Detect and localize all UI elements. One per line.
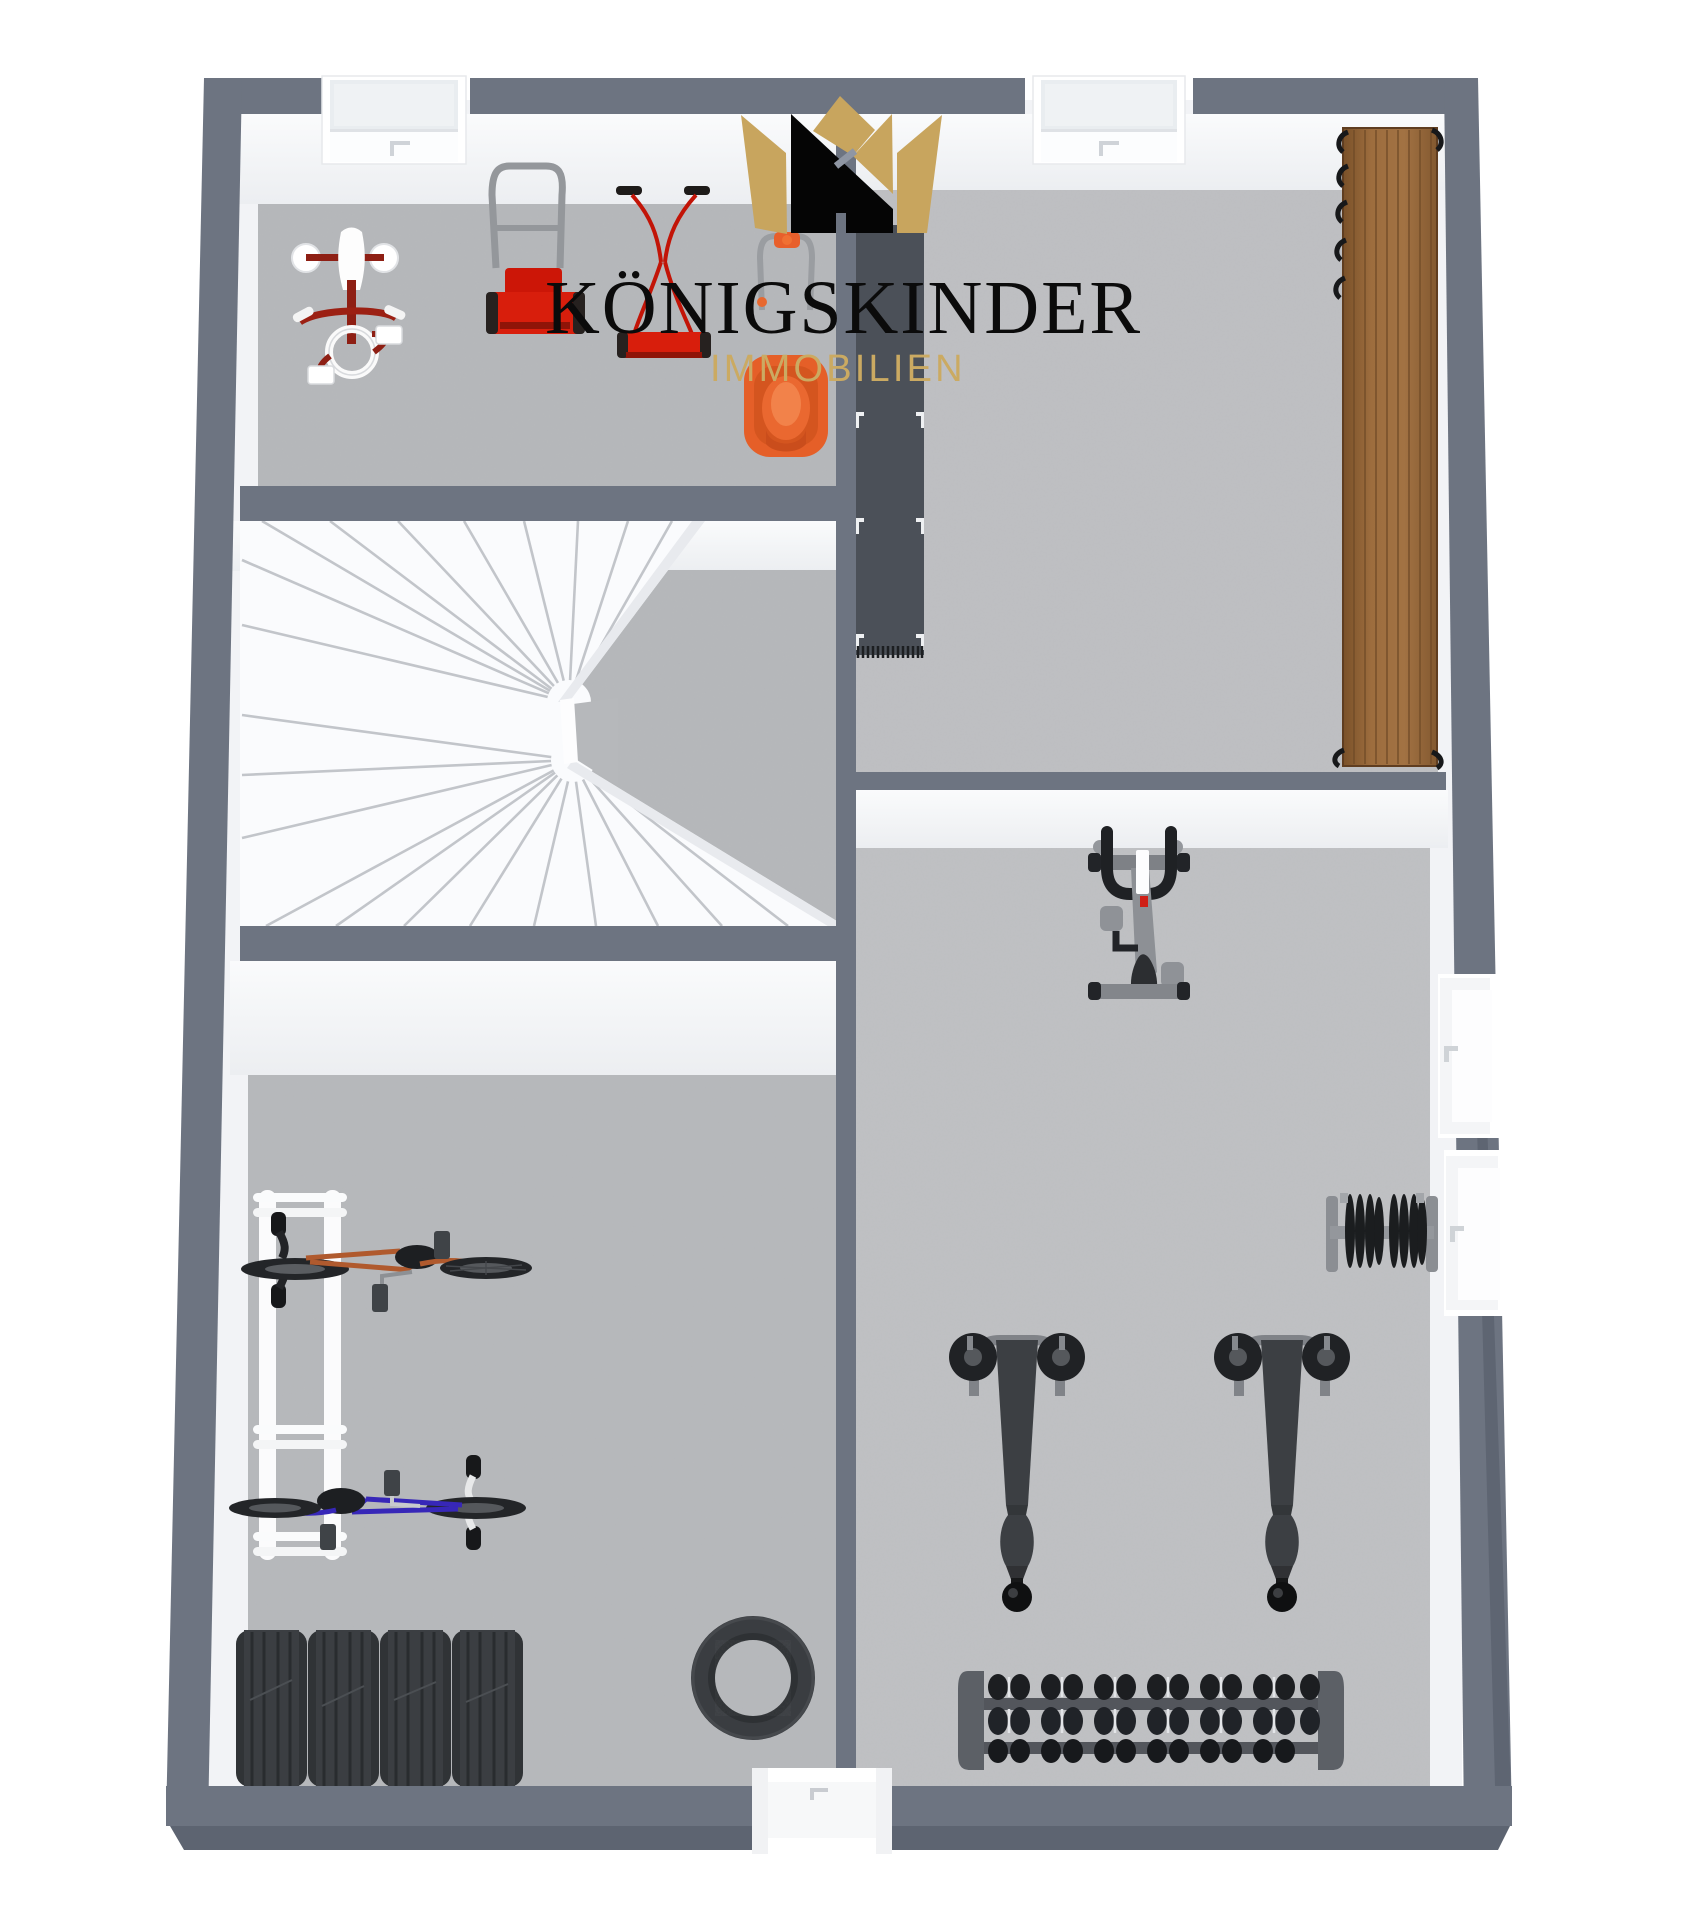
svg-text:KÖNIGSKINDER: KÖNIGSKINDER (545, 266, 1142, 350)
svg-text:IMMOBILIEN: IMMOBILIEN (710, 348, 966, 390)
